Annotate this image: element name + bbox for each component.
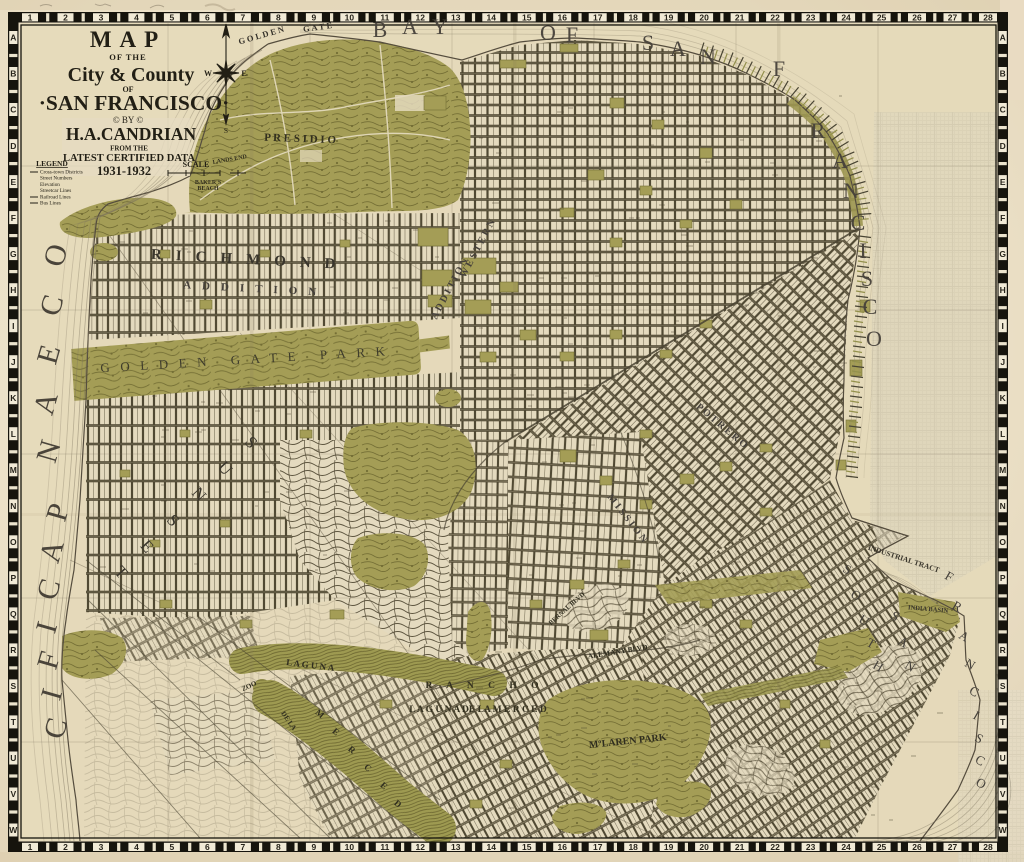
svg-text:R: R xyxy=(10,645,16,655)
svg-text:C: C xyxy=(1000,105,1006,115)
svg-text:L A G U N A DE LA M E R C E: L A G U N A DE LA M E R C E D xyxy=(409,705,547,715)
svg-text:LEGEND: LEGEND xyxy=(36,159,68,168)
svg-text:L: L xyxy=(11,429,16,439)
svg-text:7: 7 xyxy=(241,842,246,852)
svg-text:Street Numbers: Street Numbers xyxy=(40,176,72,182)
svg-text:28: 28 xyxy=(983,12,993,22)
svg-text:G: G xyxy=(10,249,17,259)
svg-text:Q: Q xyxy=(10,609,17,619)
svg-text:SCALE: SCALE xyxy=(183,160,210,169)
svg-text:Railroad Lines: Railroad Lines xyxy=(40,194,71,200)
svg-text:8: 8 xyxy=(276,12,281,22)
svg-text:T: T xyxy=(1000,717,1006,727)
svg-text:25: 25 xyxy=(877,842,887,852)
svg-text:Cross-town Districts: Cross-town Districts xyxy=(40,170,83,176)
svg-text:18: 18 xyxy=(628,842,638,852)
svg-text:1931-1932: 1931-1932 xyxy=(97,164,151,178)
svg-text:R: R xyxy=(1000,645,1006,655)
svg-text:V: V xyxy=(1000,789,1006,799)
svg-text:9: 9 xyxy=(311,842,316,852)
svg-text:3: 3 xyxy=(99,12,104,22)
svg-text:A: A xyxy=(10,33,16,43)
svg-text:M: M xyxy=(10,465,17,475)
svg-text:3: 3 xyxy=(99,842,104,852)
svg-text:23: 23 xyxy=(806,12,816,22)
svg-text:24: 24 xyxy=(841,12,851,22)
svg-text:V: V xyxy=(10,789,16,799)
svg-text:BEACH: BEACH xyxy=(197,186,219,192)
svg-text:A: A xyxy=(832,148,848,173)
svg-text:4: 4 xyxy=(134,842,139,852)
svg-text:D: D xyxy=(1000,141,1006,151)
svg-text:E: E xyxy=(241,69,246,78)
svg-text:24: 24 xyxy=(841,842,851,852)
svg-text:16: 16 xyxy=(557,842,567,852)
svg-text:5: 5 xyxy=(170,12,175,22)
svg-text:W: W xyxy=(9,825,18,835)
svg-text:W: W xyxy=(999,825,1008,835)
svg-text:23: 23 xyxy=(806,842,816,852)
svg-text:12: 12 xyxy=(416,842,426,852)
svg-text:N: N xyxy=(700,44,716,69)
svg-text:E: E xyxy=(1000,177,1006,187)
svg-text:7: 7 xyxy=(241,12,246,22)
svg-text:·SAN FRANCISCO·: ·SAN FRANCISCO· xyxy=(39,91,230,115)
svg-text:17: 17 xyxy=(593,842,603,852)
svg-text:9: 9 xyxy=(311,12,316,22)
svg-text:19: 19 xyxy=(664,12,674,22)
svg-text:C: C xyxy=(851,210,866,235)
svg-text:A: A xyxy=(1000,33,1006,43)
svg-text:I: I xyxy=(12,321,14,331)
svg-text:27: 27 xyxy=(948,12,958,22)
svg-text:8: 8 xyxy=(276,842,281,852)
svg-text:P: P xyxy=(1000,573,1006,583)
svg-text:S: S xyxy=(861,266,873,291)
svg-text:M: M xyxy=(999,465,1006,475)
svg-text:O: O xyxy=(10,537,17,547)
svg-text:LATEST CERTIFIED DATA: LATEST CERTIFIED DATA xyxy=(63,153,195,164)
svg-text:F: F xyxy=(1000,213,1005,223)
svg-text:S: S xyxy=(642,30,654,55)
svg-text:4: 4 xyxy=(134,12,139,22)
svg-text:OF THE: OF THE xyxy=(109,52,146,62)
svg-text:N: N xyxy=(10,501,16,511)
svg-text:18: 18 xyxy=(628,12,638,22)
svg-text:C: C xyxy=(10,105,16,115)
svg-text:I: I xyxy=(859,238,866,263)
svg-text:26: 26 xyxy=(912,12,922,22)
svg-text:H: H xyxy=(10,285,16,295)
svg-text:13: 13 xyxy=(451,842,461,852)
svg-text:20: 20 xyxy=(699,12,709,22)
svg-text:U: U xyxy=(1000,753,1006,763)
svg-text:B: B xyxy=(373,17,388,42)
svg-text:21: 21 xyxy=(735,842,745,852)
svg-text:17: 17 xyxy=(593,12,603,22)
svg-text:L: L xyxy=(1000,429,1005,439)
svg-text:A: A xyxy=(670,36,686,61)
svg-text:F: F xyxy=(566,22,578,47)
svg-text:N: N xyxy=(1000,501,1006,511)
svg-text:H: H xyxy=(1000,285,1006,295)
svg-text:14: 14 xyxy=(487,12,497,22)
svg-text:28: 28 xyxy=(983,842,993,852)
svg-text:21: 21 xyxy=(735,12,745,22)
svg-text:19: 19 xyxy=(664,842,674,852)
svg-text:E: E xyxy=(10,177,16,187)
svg-text:F: F xyxy=(773,56,785,81)
svg-text:O: O xyxy=(866,326,882,351)
svg-text:G: G xyxy=(999,249,1006,259)
svg-text:Q: Q xyxy=(999,609,1006,619)
svg-text:13: 13 xyxy=(451,12,461,22)
svg-text:U: U xyxy=(10,753,16,763)
svg-text:O: O xyxy=(999,537,1006,547)
svg-text:27: 27 xyxy=(948,842,958,852)
svg-text:16: 16 xyxy=(557,12,567,22)
svg-text:W: W xyxy=(204,69,212,78)
svg-text:S: S xyxy=(224,126,228,135)
svg-text:1: 1 xyxy=(28,12,33,22)
svg-text:22: 22 xyxy=(770,842,780,852)
svg-text:Bus Lines: Bus Lines xyxy=(40,201,61,207)
svg-text:S: S xyxy=(1000,681,1006,691)
svg-text:K: K xyxy=(10,393,17,403)
svg-text:J: J xyxy=(11,357,16,367)
svg-text:S: S xyxy=(10,681,16,691)
svg-text:O: O xyxy=(540,20,556,45)
svg-text:T: T xyxy=(11,717,17,727)
svg-text:D: D xyxy=(10,141,16,151)
svg-text:K: K xyxy=(1000,393,1007,403)
svg-text:6: 6 xyxy=(205,12,210,22)
svg-text:Y: Y xyxy=(432,14,448,39)
svg-text:2: 2 xyxy=(63,842,68,852)
svg-text:FROM THE: FROM THE xyxy=(110,145,148,153)
svg-text:P R E S I D I O: P R E S I D I O xyxy=(264,132,337,147)
svg-text:15: 15 xyxy=(522,842,532,852)
svg-text:22: 22 xyxy=(770,12,780,22)
svg-text:20: 20 xyxy=(699,842,709,852)
svg-text:B: B xyxy=(1000,69,1006,79)
svg-text:R A N C H O: R A N C H O xyxy=(425,681,544,691)
svg-text:R: R xyxy=(811,118,826,143)
svg-text:5: 5 xyxy=(170,842,175,852)
svg-text:B: B xyxy=(10,69,16,79)
svg-text:H.A.CANDRIAN: H.A.CANDRIAN xyxy=(66,124,197,144)
svg-text:Streetcar Lines: Streetcar Lines xyxy=(40,188,71,194)
svg-text:10: 10 xyxy=(345,842,355,852)
svg-text:25: 25 xyxy=(877,12,887,22)
svg-text:MAP: MAP xyxy=(90,27,166,52)
svg-text:15: 15 xyxy=(522,12,532,22)
svg-text:I: I xyxy=(1002,321,1004,331)
svg-text:N: N xyxy=(843,178,859,203)
svg-text:11: 11 xyxy=(380,842,389,852)
svg-text:J: J xyxy=(1000,357,1005,367)
svg-text:A: A xyxy=(402,14,418,39)
svg-text:Elevation: Elevation xyxy=(40,182,60,188)
svg-text:1: 1 xyxy=(28,842,33,852)
svg-text:F: F xyxy=(11,213,16,223)
svg-text:14: 14 xyxy=(487,842,497,852)
svg-text:City & County: City & County xyxy=(68,64,195,86)
svg-text:10: 10 xyxy=(345,12,355,22)
svg-text:6: 6 xyxy=(205,842,210,852)
svg-text:26: 26 xyxy=(912,842,922,852)
svg-text:P: P xyxy=(10,573,16,583)
svg-text:C: C xyxy=(863,294,878,319)
svg-text:2: 2 xyxy=(63,12,68,22)
